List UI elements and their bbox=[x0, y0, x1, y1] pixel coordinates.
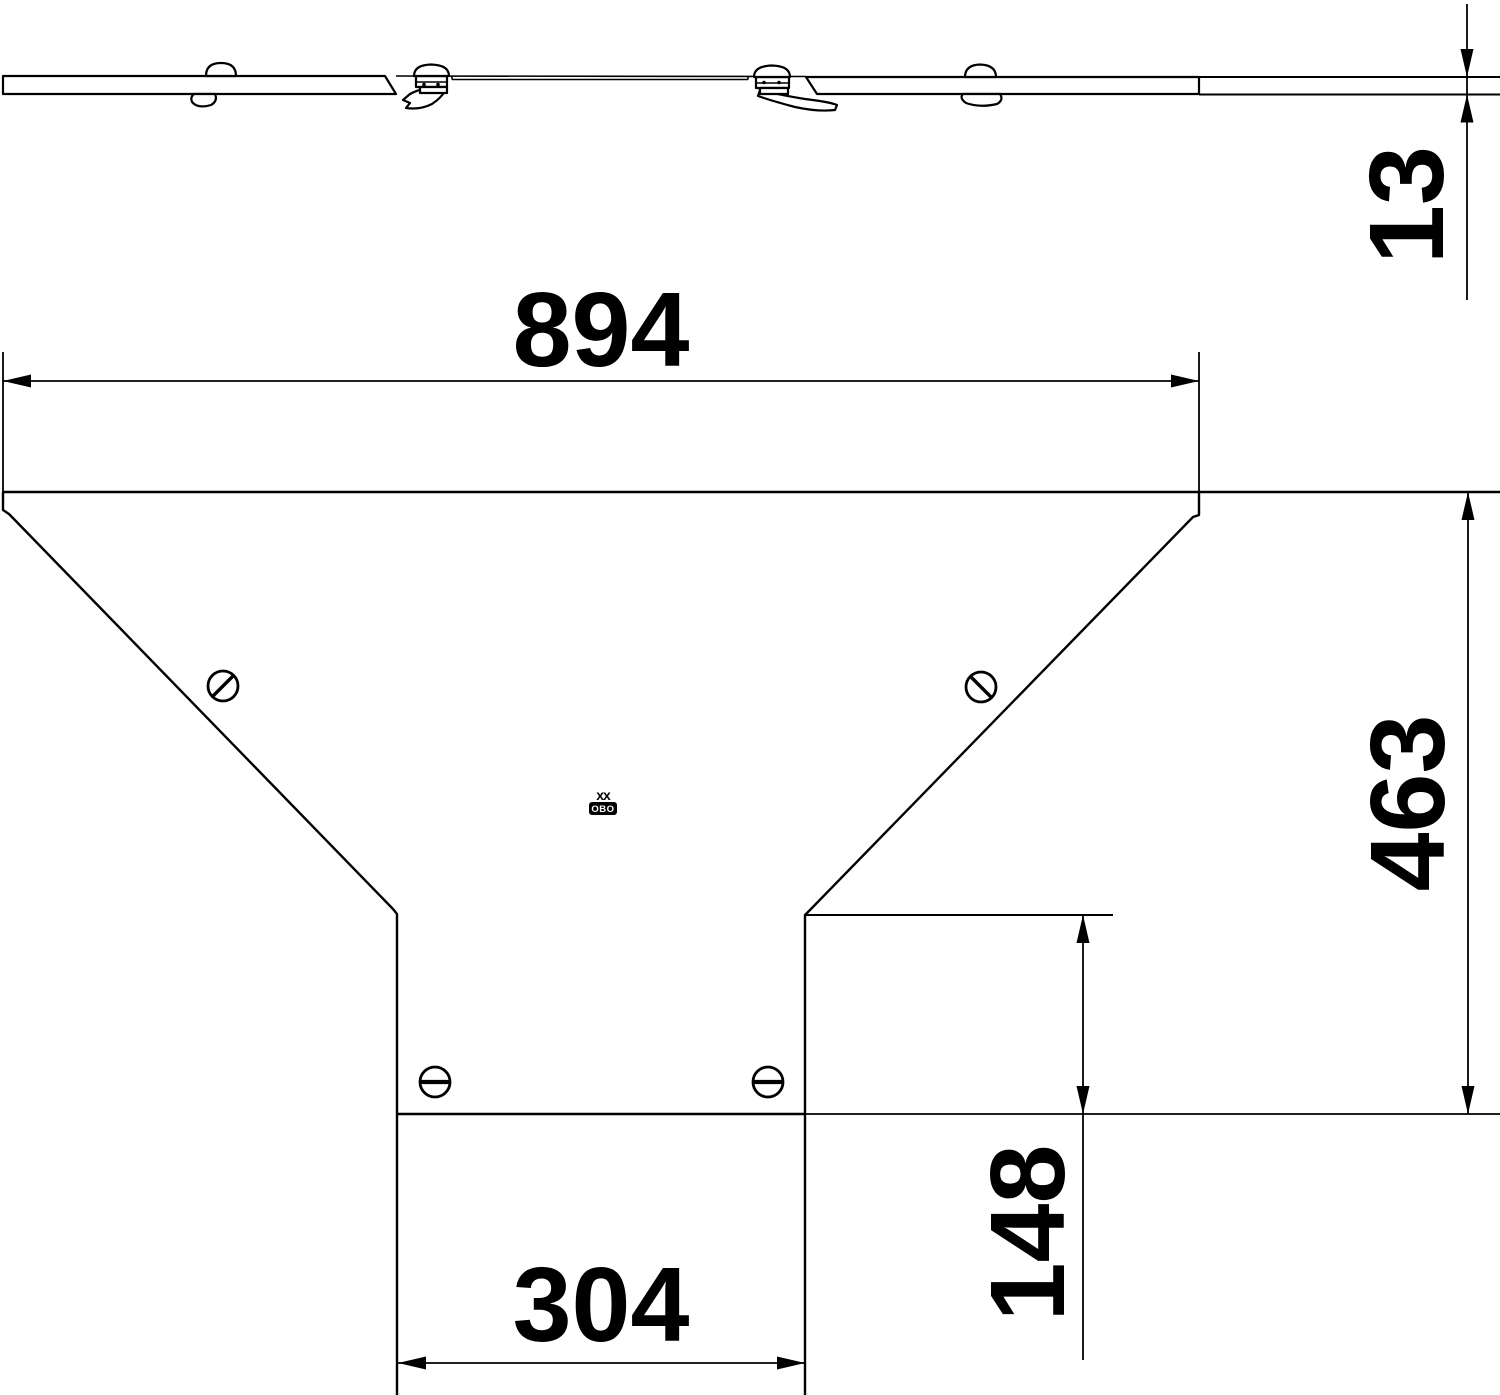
arrowhead-down-icon bbox=[1077, 1086, 1090, 1114]
arrowhead-up-icon bbox=[1077, 915, 1090, 943]
turnbuckle-body-lower bbox=[420, 87, 447, 93]
turnbuckle-left-joint bbox=[403, 65, 449, 109]
arrowhead-left-icon bbox=[3, 375, 31, 388]
rivet-dot bbox=[762, 81, 766, 85]
rivet-dot bbox=[436, 83, 440, 87]
arrowhead-right-icon bbox=[777, 1357, 805, 1370]
arrowhead-up-icon bbox=[1462, 492, 1475, 520]
right-cover-plate bbox=[806, 77, 1199, 94]
rivet-dot bbox=[422, 83, 426, 87]
turnbuckle-hook bbox=[962, 94, 1002, 106]
brand-logo-text: OBO bbox=[591, 804, 614, 815]
top-edge-view bbox=[3, 63, 1500, 111]
arrowhead-left-icon bbox=[398, 1357, 426, 1370]
turnbuckle-hook bbox=[191, 94, 216, 106]
turnbuckle-dome bbox=[414, 65, 449, 77]
dim-label-width: 894 bbox=[513, 271, 690, 389]
dim-branch-depth: 148 bbox=[969, 915, 1090, 1360]
dim-label-depth: 463 bbox=[1349, 715, 1467, 892]
turnbuckle-dome bbox=[965, 65, 996, 78]
arrowhead-down-icon bbox=[1461, 49, 1474, 77]
turnbuckle-dome bbox=[206, 63, 236, 76]
left-cover-plate bbox=[3, 76, 396, 94]
dim-overall-depth: 463 bbox=[1349, 492, 1475, 1114]
dim-label-branch-depth: 148 bbox=[969, 1145, 1087, 1322]
cover-surface-line bbox=[396, 76, 806, 77]
arrowhead-up-icon bbox=[1461, 95, 1474, 123]
turnbuckle-dome bbox=[754, 66, 790, 78]
stamp-marking: xx bbox=[596, 787, 611, 803]
screw-lower-right bbox=[753, 1067, 783, 1097]
arrowhead-down-icon bbox=[1462, 1086, 1475, 1114]
screw-lower-left bbox=[420, 1067, 450, 1097]
dim-overall-width: 894 bbox=[3, 271, 1199, 492]
front-view: xx OBO bbox=[2, 492, 1500, 1395]
left-profile-edge bbox=[3, 492, 397, 1395]
arrowhead-right-icon bbox=[1171, 375, 1199, 388]
turnbuckle-body-lower bbox=[760, 88, 788, 94]
screw-upper-right bbox=[966, 672, 996, 702]
rivet-dot bbox=[777, 81, 781, 85]
technical-drawing-t-branch-cover: xx OBO 13 894 463 bbox=[0, 0, 1500, 1395]
dim-label-branch-width: 304 bbox=[513, 1246, 690, 1364]
dim-cover-thickness: 13 bbox=[1348, 4, 1474, 300]
dim-branch-width: 304 bbox=[398, 1246, 805, 1370]
dim-label-thickness: 13 bbox=[1348, 146, 1466, 264]
screw-upper-left bbox=[208, 671, 238, 701]
center-stamp: xx OBO bbox=[589, 787, 617, 815]
